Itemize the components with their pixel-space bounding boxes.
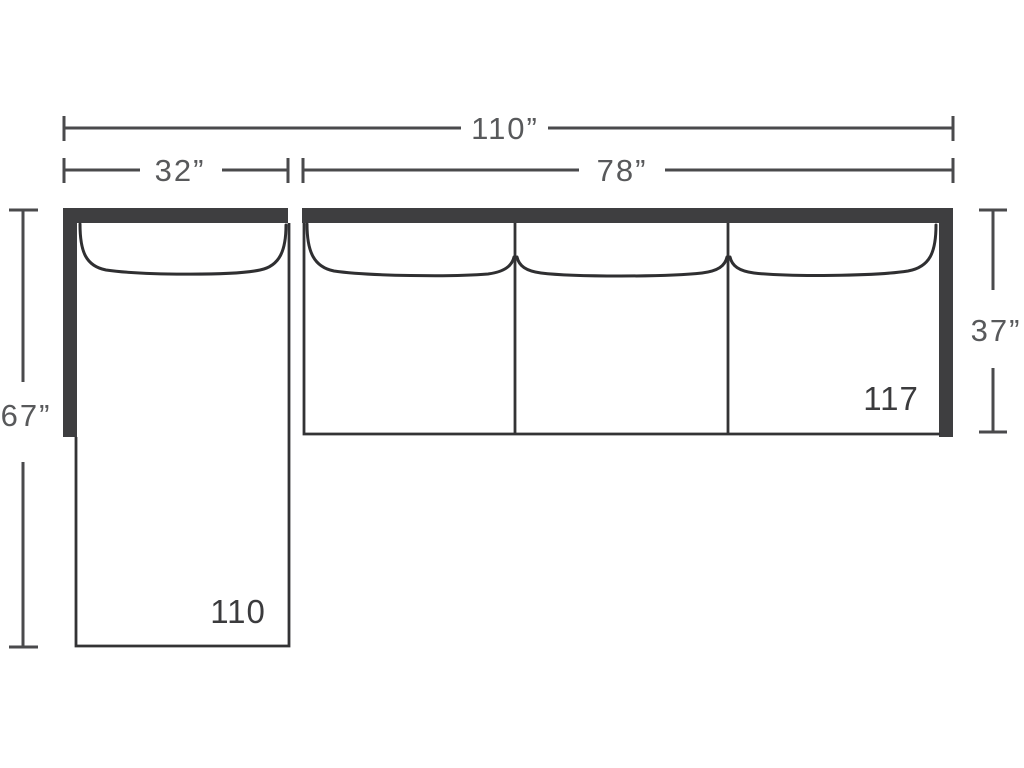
- dimension-sofa-width: 78”: [303, 153, 953, 188]
- dimension-overall-width: 110”: [64, 111, 953, 146]
- chaise-cushion-curve: [80, 224, 286, 274]
- dim-label-sofa-width: 78”: [597, 153, 648, 188]
- dimension-chaise-depth: 67”: [1, 210, 52, 647]
- dim-label-chaise-width: 32”: [155, 153, 206, 188]
- chaise-back-rail: [64, 208, 288, 223]
- sofa-model-label: 117: [863, 380, 919, 417]
- sofa-back-rail: [302, 208, 953, 223]
- sofa-cushion-curve-1: [307, 224, 514, 276]
- chaise-model-label: 110: [210, 593, 266, 630]
- dimension-sofa-depth: 37”: [971, 210, 1022, 432]
- chaise-section: 110: [76, 223, 289, 646]
- dim-label-sofa-depth: 37”: [971, 313, 1022, 348]
- sofa-cushion-curve-3: [730, 225, 936, 275]
- dimension-chaise-width: 32”: [64, 153, 288, 188]
- chaise-outline: [76, 223, 289, 646]
- dim-label-overall-width: 110”: [471, 111, 539, 146]
- sofa-section: 117: [304, 223, 940, 434]
- sofa-frame: [63, 208, 953, 437]
- right-arm: [939, 208, 953, 437]
- sofa-cushion-curve-2: [517, 257, 727, 276]
- diagram-stage: 110” 32” 78” 67”: [0, 0, 1024, 768]
- sofa-outline: [304, 223, 940, 434]
- sectional-dimension-diagram: 110” 32” 78” 67”: [0, 0, 1024, 768]
- dim-label-chaise-depth: 67”: [1, 398, 52, 433]
- left-arm: [63, 208, 77, 437]
